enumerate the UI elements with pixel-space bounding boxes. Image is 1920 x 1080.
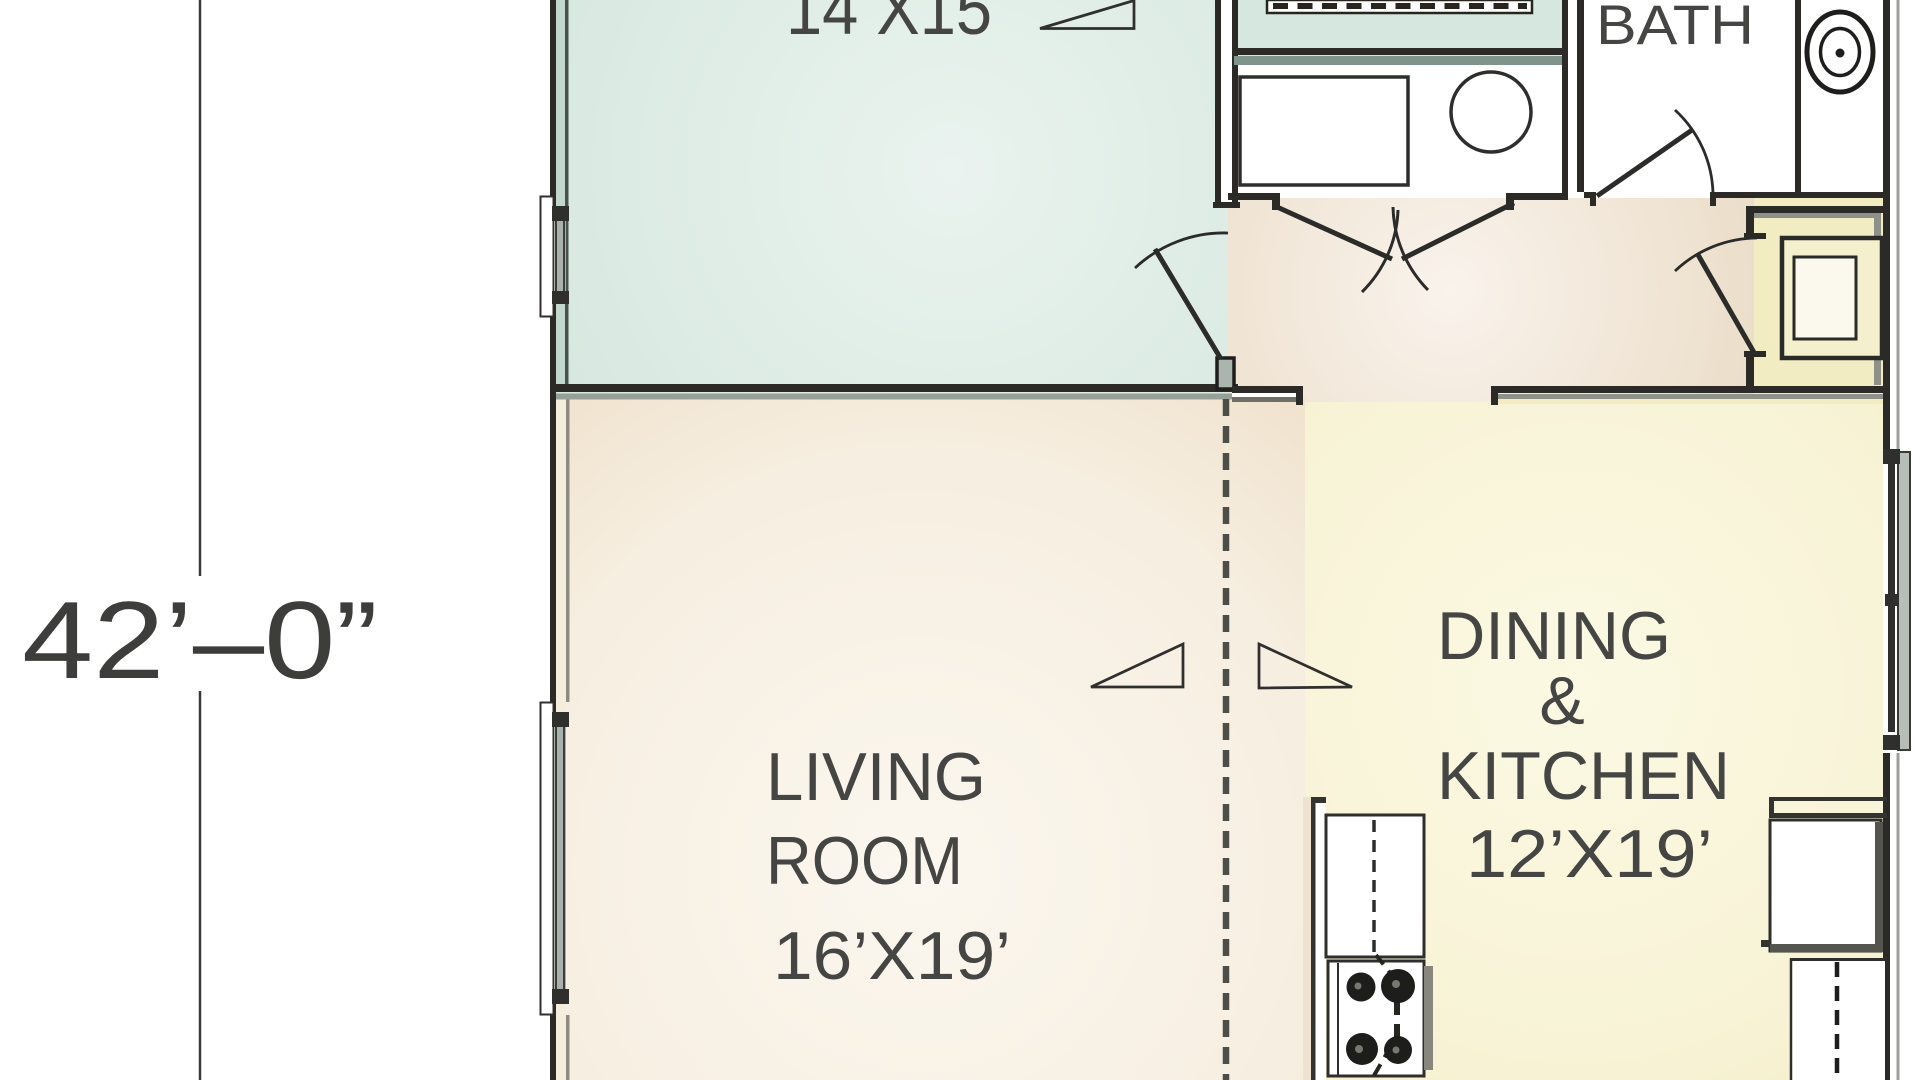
svg-text:BATH: BATH [1596, 0, 1754, 56]
svg-text:14 X15: 14 X15 [786, 0, 992, 50]
svg-text:42’–0”: 42’–0” [22, 579, 378, 702]
svg-text:LIVING: LIVING [766, 739, 986, 815]
svg-text:&: & [1539, 663, 1584, 739]
svg-text:ROOM: ROOM [766, 823, 963, 899]
svg-text:16’X19’: 16’X19’ [773, 918, 1011, 994]
svg-text:12’X19’: 12’X19’ [1466, 816, 1713, 892]
svg-text:KITCHEN: KITCHEN [1437, 738, 1730, 814]
